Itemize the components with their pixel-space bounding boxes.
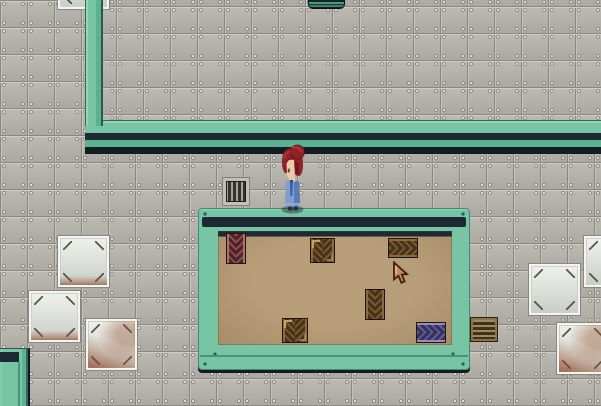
storage-room-wall-groove	[200, 355, 468, 357]
upper-room-floor	[103, 0, 601, 121]
white-tile-left-top	[57, 235, 110, 288]
upper-wall-vertical	[85, 0, 103, 126]
foot-right	[294, 207, 299, 211]
dress-hem	[286, 203, 300, 206]
white-tile-right-top	[583, 235, 601, 288]
player-character[interactable]	[277, 143, 307, 214]
floor-vent-grate[interactable]	[471, 318, 497, 341]
upper-wall-horizontal	[85, 120, 601, 154]
white-tile-left-mid	[28, 290, 81, 343]
crate-vertical-middle[interactable]	[365, 289, 385, 320]
crate-square-top[interactable]	[310, 238, 335, 263]
storage-room-top-band	[202, 217, 466, 227]
white-tile-right-bottom	[556, 322, 601, 375]
hair-shadow	[295, 161, 299, 174]
mouse-cursor	[392, 261, 411, 286]
foot-left	[288, 207, 293, 211]
crate-horizontal-top[interactable]	[388, 238, 418, 258]
white-tile-right-mid	[528, 263, 581, 316]
cursor-arrow-icon	[392, 261, 411, 286]
teal-wall-corner-bottom-left	[0, 348, 30, 406]
white-tile-left-bottom	[85, 318, 138, 371]
eye	[288, 169, 290, 173]
crate-square-bottom[interactable]	[282, 318, 308, 343]
crate-purple[interactable]	[416, 322, 446, 343]
crate-tall-maroon[interactable]	[226, 233, 246, 264]
player-sprite	[277, 143, 307, 214]
wall-vent-grate[interactable]	[223, 178, 249, 205]
console-top-edge[interactable]	[308, 0, 345, 9]
game-viewport	[0, 0, 601, 406]
